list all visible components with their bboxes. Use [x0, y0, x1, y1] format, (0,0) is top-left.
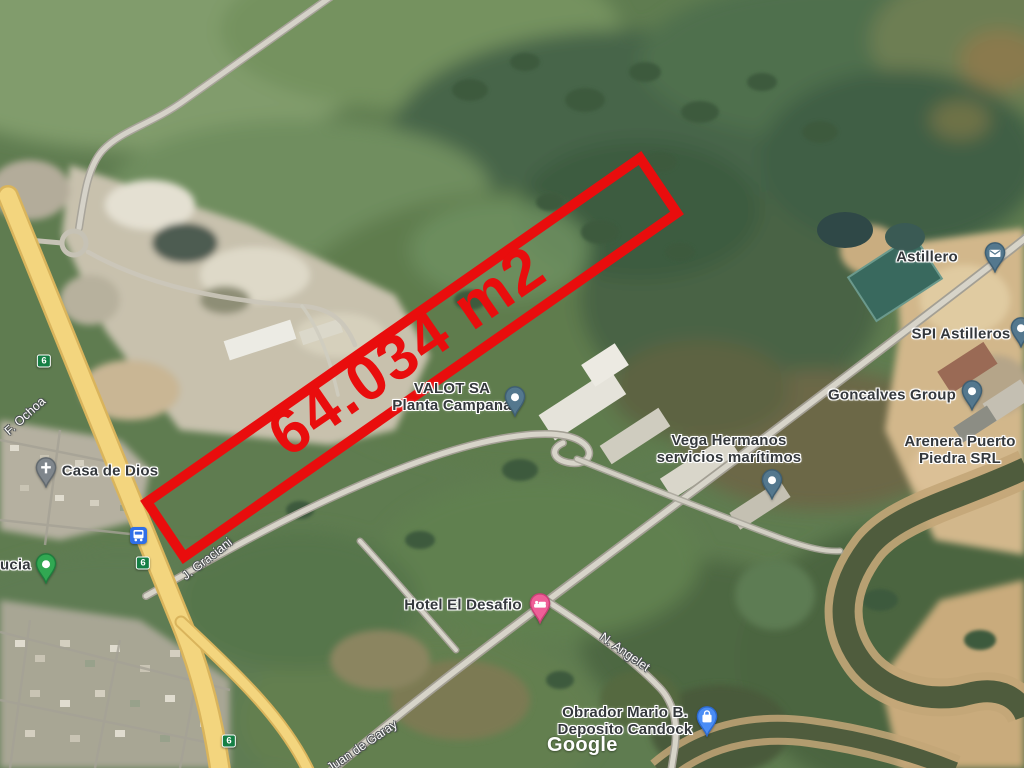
place-label-vega-hermanos[interactable]: Vega Hermanos servicios marítimos	[657, 432, 802, 467]
place-label-valot[interactable]: VALOT SA Planta Campana	[392, 380, 512, 415]
mail-icon	[990, 250, 1001, 257]
place-label-casa-de-dios[interactable]: Casa de Dios	[62, 462, 159, 479]
bed-icon	[534, 601, 546, 608]
place-label-arenera[interactable]: Arenera Puerto Piedra SRL	[904, 433, 1015, 468]
google-logo: Google	[547, 734, 618, 757]
lucia-pin[interactable]	[35, 553, 57, 584]
place-label-hotel-el-desafio[interactable]: Hotel El Desafio	[404, 596, 521, 613]
place-label-line: Piedra SRL	[904, 450, 1015, 467]
valot-pin[interactable]	[504, 386, 526, 417]
spi-astilleros-pin[interactable]	[1010, 317, 1024, 348]
satellite-map[interactable]: 64.034 m2 Astillero SPI Astilleros Gonca…	[0, 0, 1024, 768]
place-label-line: Arenera Puerto	[904, 433, 1015, 450]
place-label-line: Obrador Mario B.	[558, 704, 693, 721]
place-label-line: VALOT SA	[392, 380, 512, 397]
satellite-imagery	[0, 0, 1024, 768]
goncalves-group-pin[interactable]	[961, 380, 983, 411]
place-label-lucia[interactable]: ucia	[0, 556, 31, 573]
dot-icon	[968, 387, 976, 395]
place-label-astillero[interactable]: Astillero	[896, 248, 958, 265]
route-6-badge: 6	[222, 735, 236, 748]
dot-icon	[42, 560, 50, 568]
place-label-line: Planta Campana	[392, 397, 512, 414]
astillero-pin[interactable]	[984, 242, 1006, 273]
obrador-pin[interactable]	[696, 706, 718, 737]
bus-glyph	[132, 529, 145, 542]
dot-icon	[768, 476, 776, 484]
place-label-goncalves-group[interactable]: Goncalves Group	[828, 386, 956, 403]
casa-de-dios-pin[interactable]	[35, 457, 57, 488]
place-label-line: Vega Hermanos	[657, 432, 802, 449]
place-label-spi-astilleros[interactable]: SPI Astilleros	[912, 325, 1011, 342]
route-6-badge: 6	[37, 355, 51, 368]
dot-icon	[511, 393, 519, 401]
place-label-line: servicios marítimos	[657, 449, 802, 466]
route-6-badge: 6	[136, 557, 150, 570]
hotel-el-desafio-pin[interactable]	[529, 593, 551, 624]
bus-stop-icon[interactable]	[130, 527, 147, 544]
vega-hermanos-pin[interactable]	[761, 469, 783, 500]
